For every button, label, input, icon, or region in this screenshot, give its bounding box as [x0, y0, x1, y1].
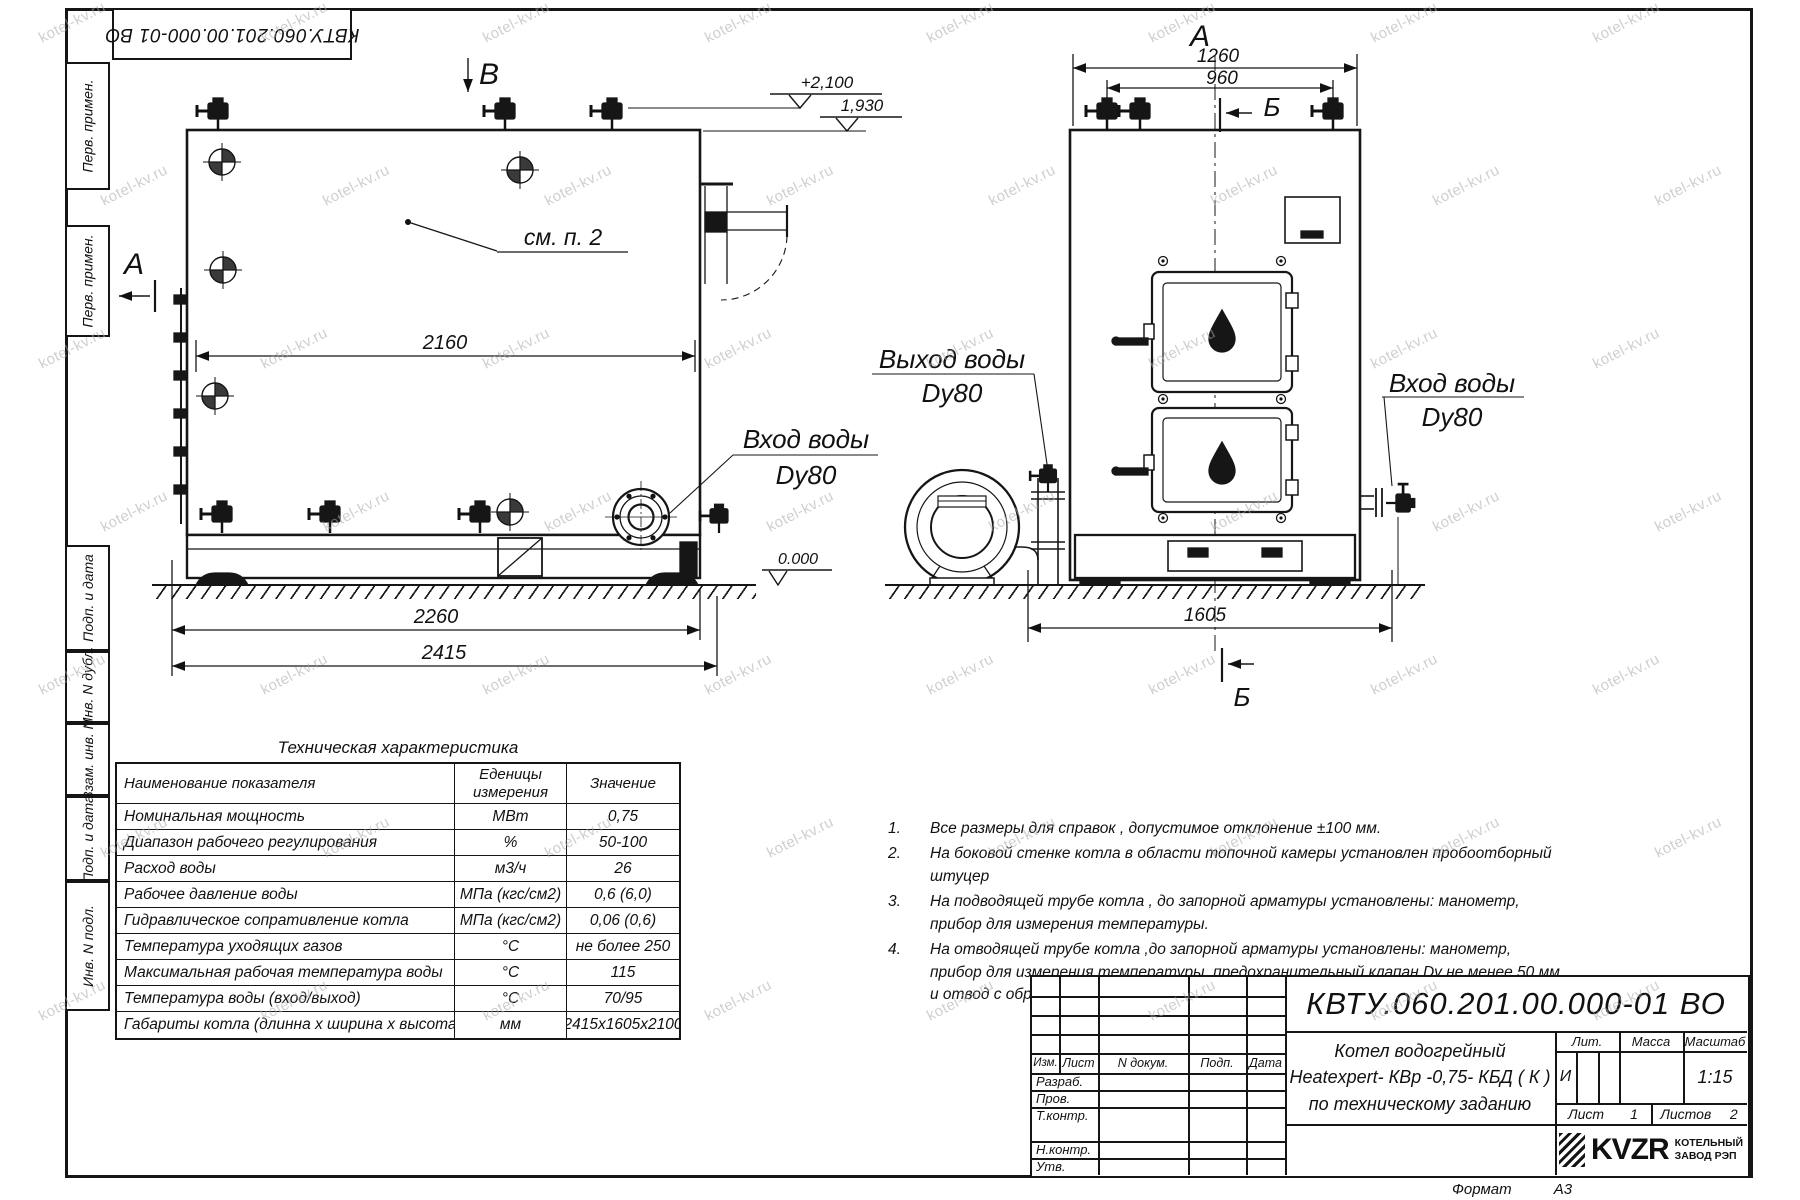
- note-number: 3.: [888, 891, 930, 936]
- spec-cell: 70/95: [567, 986, 679, 1012]
- dim-2160: 2160: [422, 332, 468, 354]
- note-number: 4.: [888, 939, 930, 1006]
- base-skid-side: [187, 535, 700, 585]
- spec-cell: °С: [455, 960, 567, 986]
- spec-header: Значение: [567, 764, 679, 804]
- front-inlet-dn: Dy80: [1422, 402, 1483, 432]
- note-item: 1. Все размеры для справок , допустимое …: [888, 818, 1564, 840]
- spec-cell: не более 250: [567, 934, 679, 960]
- spec-cell: 0,75: [567, 804, 679, 830]
- sheets-value: 2: [1730, 1106, 1738, 1122]
- spec-cell: Гидравлическое сопративление котла: [117, 908, 455, 934]
- sheets-label: Листов: [1660, 1106, 1711, 1122]
- row-razrab: Разраб.: [1032, 1073, 1098, 1090]
- mass-header: Масса: [1619, 1031, 1683, 1051]
- valve-icon: [1312, 98, 1343, 130]
- line: [1032, 996, 1285, 998]
- line: [1032, 1034, 1285, 1036]
- drawing-sheet: Перв. примен. Перв. примен. Подп. и дата…: [0, 0, 1800, 1200]
- dim-1260: 1260: [1197, 46, 1240, 67]
- spec-cell: Диапазон рабочего регулирования: [117, 830, 455, 856]
- note-number: 1.: [888, 818, 930, 840]
- spec-table: Наименование показателя Еденицы измерени…: [115, 762, 681, 1040]
- format-value: А3: [1554, 1181, 1572, 1198]
- kvzr-logo: KVZR КОТЕЛЬНЫЙ ЗАВОД РЭП: [1559, 1133, 1743, 1167]
- valve-icon: [700, 504, 728, 533]
- spec-cell: 26: [567, 856, 679, 882]
- product-name-line1: Котел водогрейный: [1334, 1038, 1505, 1064]
- dim-1605: 1605: [1184, 605, 1227, 626]
- sheets-cell: Листов 2: [1651, 1103, 1747, 1124]
- spec-cell: Температура уходящих газов: [117, 934, 455, 960]
- product-name-line2: Heatexpert- КВр -0,75- КБД ( К ): [1290, 1064, 1551, 1090]
- kvzr-zigzag-icon: [1559, 1133, 1585, 1167]
- elevation-2100: +2,100: [801, 73, 854, 92]
- row-prov: Пров.: [1032, 1090, 1098, 1107]
- row-utv: Утв.: [1032, 1158, 1098, 1175]
- scale-header: Масштаб: [1683, 1031, 1747, 1051]
- note-text: На подводящей трубе котла , до запорной …: [930, 891, 1564, 936]
- note-text: На боковой стенке котла в области топочн…: [930, 843, 1564, 888]
- note-text: Все размеры для справок , допустимое отк…: [930, 818, 1564, 840]
- spec-cell: МПа (кгс/см2): [455, 908, 567, 934]
- spec-cell: Температура воды (вход/выход): [117, 986, 455, 1012]
- spec-header: Еденицы измерения: [455, 764, 567, 804]
- valve-icon: [1086, 98, 1117, 130]
- ground-hatch-side: [152, 584, 756, 599]
- outlet-piping: [1014, 465, 1065, 585]
- spec-cell: °С: [455, 986, 567, 1012]
- valve-icon: [484, 98, 515, 130]
- col-list: Лист: [1059, 1053, 1098, 1073]
- col-podp: Подп.: [1188, 1053, 1246, 1073]
- base-skid-front: [1075, 535, 1355, 585]
- sheet-label: Лист: [1568, 1106, 1604, 1122]
- dim-2260: 2260: [413, 606, 459, 628]
- kvzr-sub-line2: ЗАВОД РЭП: [1675, 1150, 1743, 1163]
- scale-value: 1:15: [1683, 1051, 1747, 1103]
- section-marker-b: В: [479, 58, 499, 91]
- line: [1188, 977, 1190, 1175]
- spec-cell: МВт: [455, 804, 567, 830]
- front-inlet-label: Вход воды: [1389, 368, 1515, 398]
- spec-cell: °С: [455, 934, 567, 960]
- kvzr-logo-subtitle: КОТЕЛЬНЫЙ ЗАВОД РЭП: [1675, 1137, 1743, 1162]
- spec-cell: 0,6 (6,0): [567, 882, 679, 908]
- section-marker-b-bottom: Б: [1234, 682, 1251, 712]
- front-outlet-label: Выход воды: [879, 344, 1025, 374]
- row-nkontr: Н.контр.: [1032, 1141, 1098, 1158]
- col-izm: Изм.: [1032, 1053, 1059, 1073]
- note-item: 2. На боковой стенке котла в области топ…: [888, 843, 1564, 888]
- spec-cell: Расход воды: [117, 856, 455, 882]
- side-inlet-label: Вход воды: [743, 424, 869, 454]
- format-label: Формат: [1452, 1181, 1512, 1198]
- elevation-0000: 0.000: [778, 551, 818, 568]
- spec-cell: 0,06 (0,6): [567, 908, 679, 934]
- col-ndoc: N докум.: [1098, 1053, 1188, 1073]
- front-outlet-dn: Dy80: [922, 378, 983, 408]
- sheet-cell: Лист 1: [1555, 1103, 1651, 1124]
- row-tkontr: Т.контр.: [1032, 1107, 1098, 1124]
- line: [1598, 1051, 1600, 1103]
- sheet-value: 1: [1630, 1106, 1638, 1122]
- spec-cell: м3/ч: [455, 856, 567, 882]
- valve-icon: [197, 98, 228, 130]
- line: [1246, 977, 1248, 1175]
- lit-header: Лит.: [1555, 1031, 1619, 1051]
- spec-cell: Максимальная рабочая температура воды: [117, 960, 455, 986]
- kvzr-logo-text: KVZR: [1591, 1133, 1669, 1167]
- valve-icon: [591, 98, 622, 130]
- kvzr-sub-line1: КОТЕЛЬНЫЙ: [1675, 1137, 1743, 1150]
- side-inlet-dn: Dy80: [776, 460, 837, 490]
- section-marker-b-top: Б: [1264, 92, 1281, 122]
- col-data: Дата: [1246, 1053, 1285, 1073]
- product-name: Котел водогрейный Heatexpert- КВр -0,75-…: [1285, 1031, 1555, 1124]
- format-note: Формат А3: [1452, 1181, 1572, 1198]
- elevation-1930: 1,930: [841, 96, 884, 115]
- inlet-piping: [1360, 484, 1415, 585]
- flue-outlet: [699, 184, 787, 300]
- valve-icon: [1119, 98, 1150, 130]
- note-number: 2.: [888, 843, 930, 888]
- dim-960: 960: [1206, 68, 1238, 89]
- spec-table-title: Техническая характеристика: [115, 738, 681, 758]
- line: [1098, 977, 1100, 1175]
- callout-see-item-2: см. п. 2: [524, 224, 602, 250]
- spec-header: Наименование показателя: [117, 764, 455, 804]
- spec-cell: 50-100: [567, 830, 679, 856]
- spec-cell: 115: [567, 960, 679, 986]
- spec-cell: Габариты котла (длинна х ширина х высота…: [117, 1012, 455, 1038]
- line: [1032, 1015, 1285, 1017]
- spec-cell: Номинальная мощность: [117, 804, 455, 830]
- spec-cell: 2415х1605х2100: [567, 1012, 679, 1038]
- product-name-line3: по техническому заданию: [1309, 1091, 1531, 1117]
- spec-cell: МПа (кгс/см2): [455, 882, 567, 908]
- doc-number: КВТУ.060.201.00.000-01 ВО: [1285, 977, 1747, 1031]
- note-item: 3. На подводящей трубе котла , до запорн…: [888, 891, 1564, 936]
- section-marker-a: А: [122, 248, 144, 281]
- blower-fan: [905, 470, 1019, 585]
- line: [1576, 1051, 1578, 1103]
- spec-cell: %: [455, 830, 567, 856]
- spec-cell: мм: [455, 1012, 567, 1038]
- lit-value: И: [1555, 1051, 1576, 1103]
- title-block: КВТУ.060.201.00.000-01 ВО Котел водогрей…: [1030, 975, 1750, 1178]
- logo-cell: KVZR КОТЕЛЬНЫЙ ЗАВОД РЭП: [1555, 1124, 1747, 1175]
- dim-2415: 2415: [421, 642, 467, 664]
- ground-hatch-front: [885, 584, 1425, 599]
- spec-cell: Рабочее давление воды: [117, 882, 455, 908]
